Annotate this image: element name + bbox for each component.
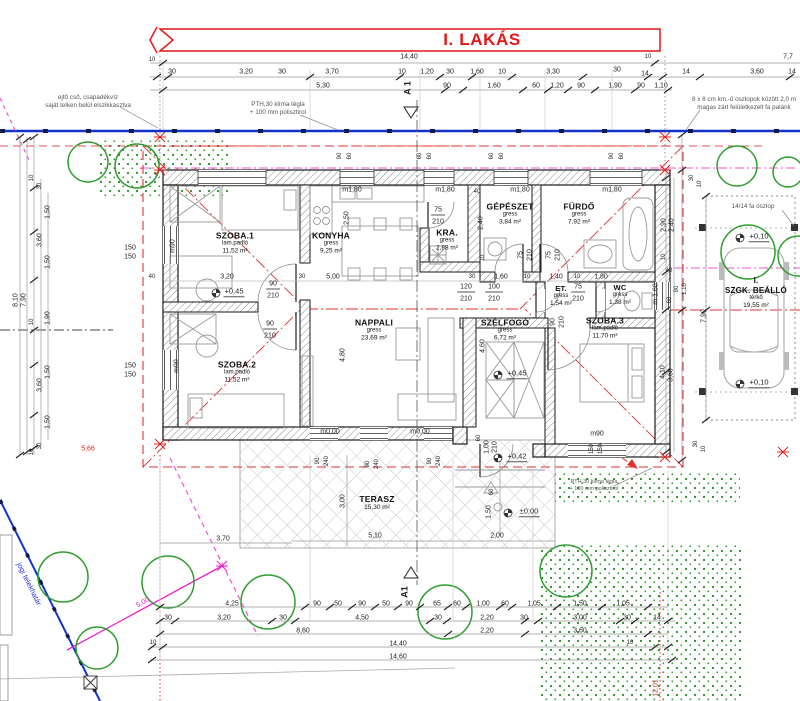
dim: 1,20 [550,83,564,90]
note-brick-bottom: PTH 30 klíma tégla+ 100 mm polisztirol [569,479,618,493]
room-floor: gress [550,293,572,300]
room-floor: gress [436,238,458,245]
room-name: GÉPÉSZET [487,201,534,211]
door-label: 90 [266,281,280,290]
note-line: saját telken belül elszikkasztva [45,102,131,109]
car-icon [719,248,789,388]
room-area: 7,92 m² [563,219,594,227]
dim: 30 [37,183,43,190]
note-brick-top: PTH,30 klíma tégla+ 100 mm polisztirol [250,101,306,117]
dim: 1,50 [486,505,493,519]
door-label: 210 [264,333,276,340]
room-area: 6,72 m² [481,335,529,343]
dim: 150 [124,254,136,261]
room-name: KONYHA [312,230,350,240]
room-area: 15,30 m² [359,504,394,512]
dim: 1,05 [527,601,541,608]
dim: 2,00 [490,533,504,540]
dim: 1,80 [594,274,608,281]
room-area: 19,55 m² [725,302,787,310]
room-floor: térkő [725,295,787,302]
dim: 30 [434,615,442,622]
window-label: m90 [174,359,181,373]
room-konyha: KONYHAgress9,25 m² [312,230,350,255]
room-area: 11,52 m² [216,248,254,256]
note-line: 8 x 8 cm km.-ű oszlopok között 2,0 m [692,96,796,103]
dim: 3,60 [37,378,44,392]
dim: 1,50 [45,255,52,269]
window-label: 90 [365,461,371,468]
door-label: 75 [546,251,553,259]
dim: 30 [520,615,528,622]
dim: 90 [609,153,615,160]
dim: 1,60 [470,69,484,76]
door-label: 120 [457,284,475,293]
dim: 90 [443,83,451,90]
dim: 1,50 [45,415,52,429]
room-area: 1,54 m² [550,300,572,308]
room-name: FÜRDŐ [563,201,594,211]
dim: 10 [701,446,707,453]
dim: 65 [433,601,441,608]
room-szoba2: SZOBA.2lam.padló11,52 m² [218,359,256,384]
dim: 10 [29,319,35,326]
door-label: 60 [476,435,482,442]
dim: 2,40 [478,216,485,230]
dim: 60 [501,601,509,608]
room-area: 3,84 m² [487,219,534,227]
room-name: SZOBA.1 [216,230,254,240]
dim: 1,10 [654,83,668,90]
dim: 30 [168,69,176,76]
dim: 150 [124,372,136,379]
dim: 5,10 [368,533,382,540]
dim: 10 [149,57,156,63]
dim: 1,10 [682,283,688,295]
level-label: m0,00 [320,429,339,436]
dim: 2,20 [480,628,494,635]
room-wc: WCgress1,38 m² [609,283,631,307]
room-szelfogo: SZÉLFOGÓgress6,72 m² [481,317,529,342]
dim: 1,50 [573,601,587,608]
dim: 90 [674,286,680,293]
note-line: magas zárt felületkezelt fa palánk [697,104,790,111]
dim: 30 [469,274,476,280]
note-line: ejtő cső, csapadékvíz [58,94,118,101]
dim: 3,20 [220,274,234,281]
dim: 90 [313,601,321,608]
room-name: SZGK. BEÁLLÓ [725,286,787,296]
room-terasz: TERASZ15,30 m² [359,494,394,512]
door-label: 90 [263,321,277,330]
dim: 40 [474,189,481,195]
dim: 60 [489,153,495,160]
dim: 60 [489,489,495,496]
dim: 7,7 [783,54,793,61]
page-title: I. LAKÁS [443,30,521,50]
dim: 14 [682,69,690,76]
window-label: m90 [170,239,177,253]
door-label: 210 [488,296,500,303]
dim: 30 [299,274,306,280]
dim: 10 [498,69,506,76]
dim: 60 [347,153,353,160]
dim: 5,00 [326,274,340,281]
door-label: 210 [559,316,566,328]
room-name: ET. [550,284,572,293]
window-label: 240 [374,459,380,469]
door-label: 210 [432,219,444,226]
room-area: 1,38 m² [609,299,631,307]
room-floor: gress [355,328,393,335]
dim: 1,60 [487,83,501,90]
door-label: 210 [492,441,499,453]
door-label: 210 [460,296,472,303]
dim: 4,10 [660,365,667,379]
dim: 30 [278,69,286,76]
dim: 14,40 [389,641,407,648]
window-label: m1,80 [510,187,529,194]
room-kamra: KRA.gress2,88 m² [436,227,458,252]
door-label: 75 [431,207,445,216]
dim: 7,90 [21,293,28,307]
level-label: +0,10 [749,378,770,388]
door-label: 100 [485,284,503,293]
room-area: 2,88 m² [436,245,458,253]
dim: 10 [524,274,531,280]
dim: 60 [619,153,625,160]
dim: 4,80 [340,348,347,362]
note-line: + 100 mm polisztirol [250,109,306,116]
door-label: 210 [555,249,562,261]
dim: 1,05 [616,601,630,608]
dim: 3,70 [216,536,230,543]
dim: 3,60 [37,233,44,247]
room-floor: gress [609,292,631,299]
room-name: SZÉLFOGÓ [481,317,529,327]
note-fence: 8 x 8 cm km.-ű oszlopok között 2,0 mmaga… [692,96,796,112]
window-label: 240 [324,456,330,466]
window-label: 240 [436,456,442,466]
dim: 2,40 [669,218,676,232]
window-label: 90 [315,458,321,465]
dim: 4,50 [355,615,369,622]
dim: 10 [480,255,486,262]
dim: 1,90 [45,311,52,325]
dim: m 1,60 [653,283,660,304]
dim: 14,60 [389,654,407,661]
level-label: m0,00 [410,429,429,436]
dim: 1,40 [549,274,563,281]
title-banner [150,27,660,53]
door-label: 75 [571,284,585,293]
dim: 60 [532,83,540,90]
room-floor: gress [312,241,350,248]
dim: 2,50 [344,211,351,225]
dim: 10 [29,449,35,456]
window-label: m90 [590,431,604,438]
dim: 60 [417,153,423,160]
note-rainwater: ejtő cső, csapadékvízsaját telken belül … [45,94,131,110]
dim: 1,50 [45,205,52,219]
dim: 60 [667,297,673,304]
door-label: 90 [550,318,557,326]
dim: 1,60 [494,274,508,281]
room-name: NAPPALI [355,317,393,327]
level-label: +0,45 [507,369,528,379]
room-floor: lam.padló [216,241,254,248]
dim: 90 [637,83,645,90]
dim: 3,00 [340,494,347,508]
dim: 10 [697,181,703,188]
dim: 90 [577,83,585,90]
dim: 4,25 [225,601,239,608]
room-name: WC [609,283,631,292]
dim: 14,40 [400,54,418,61]
dim: 50 [334,601,342,608]
room-name: KRA. [436,227,458,237]
dim: 150 [124,245,136,252]
window-label: m1,80 [602,187,621,194]
door-label: 210 [527,249,534,261]
dim: 14 [653,615,661,622]
dim: 1,00 [476,601,490,608]
dim: 3,30 [546,69,560,76]
dim: 90 [358,601,366,608]
level-label: +0,10 [749,232,770,242]
room-area: 23,69 m² [355,335,393,343]
dim: 30 [689,175,695,182]
dim: 30 [446,69,454,76]
dim: 60 [453,601,461,608]
window-label: 90 [427,458,433,465]
dim: 30 [37,443,43,450]
window-label: 150 [598,444,604,454]
dim: 90 [337,153,343,160]
room-area: 9,25 m² [312,248,350,256]
dim: 1,90 [608,83,622,90]
room-floor: gress [563,212,594,219]
room-floor: lam.padló [586,326,624,333]
dim: 3,20 [217,615,231,622]
door-label: 210 [267,293,279,300]
dim: 30 [164,615,172,622]
dim: 30 [613,67,621,74]
floor-plan-page: I. LAKÁS ejtő cső, csapadékvízsaját telk… [0,0,800,701]
room-area: 11,70 m² [586,333,624,341]
room-nappali: NAPPALIgress23,69 m² [355,317,393,342]
window-label: m1,80 [435,187,454,194]
room-floor: lam.padló [218,370,256,377]
window-label: m1,80 [342,187,361,194]
room-szoba1: SZOBA.1lam.padló11,52 m² [216,230,254,255]
dim: 40 [149,274,156,280]
dim: 8,60 [296,628,310,635]
room-szoba3: SZOBA.3lam.padló11,70 m² [586,315,624,340]
dim: 90 [405,601,413,608]
dim: 3,70 [325,69,339,76]
dim: 10 [574,274,581,280]
dim: 5,30 [316,83,330,90]
dim: 3,60 [573,628,587,635]
room-floor: gress [481,328,529,335]
dim: 1,20 [420,69,434,76]
dim: 12,01 [653,679,660,697]
level-label: +0,42 [507,452,528,462]
room-area: 11,52 m² [218,377,256,385]
note-line: + 100 mm polisztirol [569,486,618,492]
room-gepeszet: GÉPÉSZETgress3,84 m² [487,201,534,226]
dim: 150 [124,363,136,370]
dim: 10 [627,640,634,646]
room-name: I. [725,276,787,286]
note-line: PTH 30 klíma tégla [571,479,618,485]
room-name: TERASZ [359,494,394,504]
dim: 40 [666,268,673,274]
level-label: ±0,00 [519,507,540,517]
note-line: 14/14 fa oszlop [732,203,775,210]
dim: 30 [279,615,287,622]
dim: 3,00 [573,615,587,622]
carport-label: I.SZGK. BEÁLLÓtérkő19,55 m² [725,276,787,310]
note-line: PTH,30 klíma tégla [251,101,305,108]
dim: 4,60 [480,339,487,353]
dim: 3,60 [668,368,675,382]
door-label: 210 [572,296,584,303]
dim: 10 [398,69,406,76]
room-name: SZOBA.2 [218,359,256,369]
dim: 14 [641,71,649,78]
dim: 60 [499,153,505,160]
dim: 5,66 [81,446,95,453]
window-label: 150 [589,444,595,454]
section-marker-bottom: A1 [401,586,410,598]
dim: 30 [623,615,631,622]
dim: 7,90 [701,309,708,323]
door-label: 1,00 [484,440,491,454]
dim: 2,90 [661,218,668,232]
dim: 8,10 [13,293,20,307]
note-post: 14/14 fa oszlop [732,203,775,211]
dim: 10 [29,175,35,182]
green-areas [98,140,742,701]
section-marker-top: A 1 [404,81,413,95]
dim: 30 [693,441,699,448]
dim: 10 [645,54,652,60]
dim: 50 [382,601,390,608]
dim: 10 [661,254,667,261]
dim: 14 [788,69,796,76]
room-floor: gress [487,212,534,219]
door-label: 75 [518,251,525,259]
level-label: +0,45 [224,287,245,297]
dim: 1,50 [45,365,52,379]
dim: 3,20 [239,69,253,76]
dim: 10 [150,640,157,646]
room-name: SZOBA.3 [586,315,624,325]
dim: 3,60 [750,69,764,76]
dim: 60 [427,153,433,160]
room-furdo: FÜRDŐgress7,92 m² [563,201,594,226]
dim: 2,20 [480,615,494,622]
room-eloter: ET.gress1,54 m² [550,284,572,308]
